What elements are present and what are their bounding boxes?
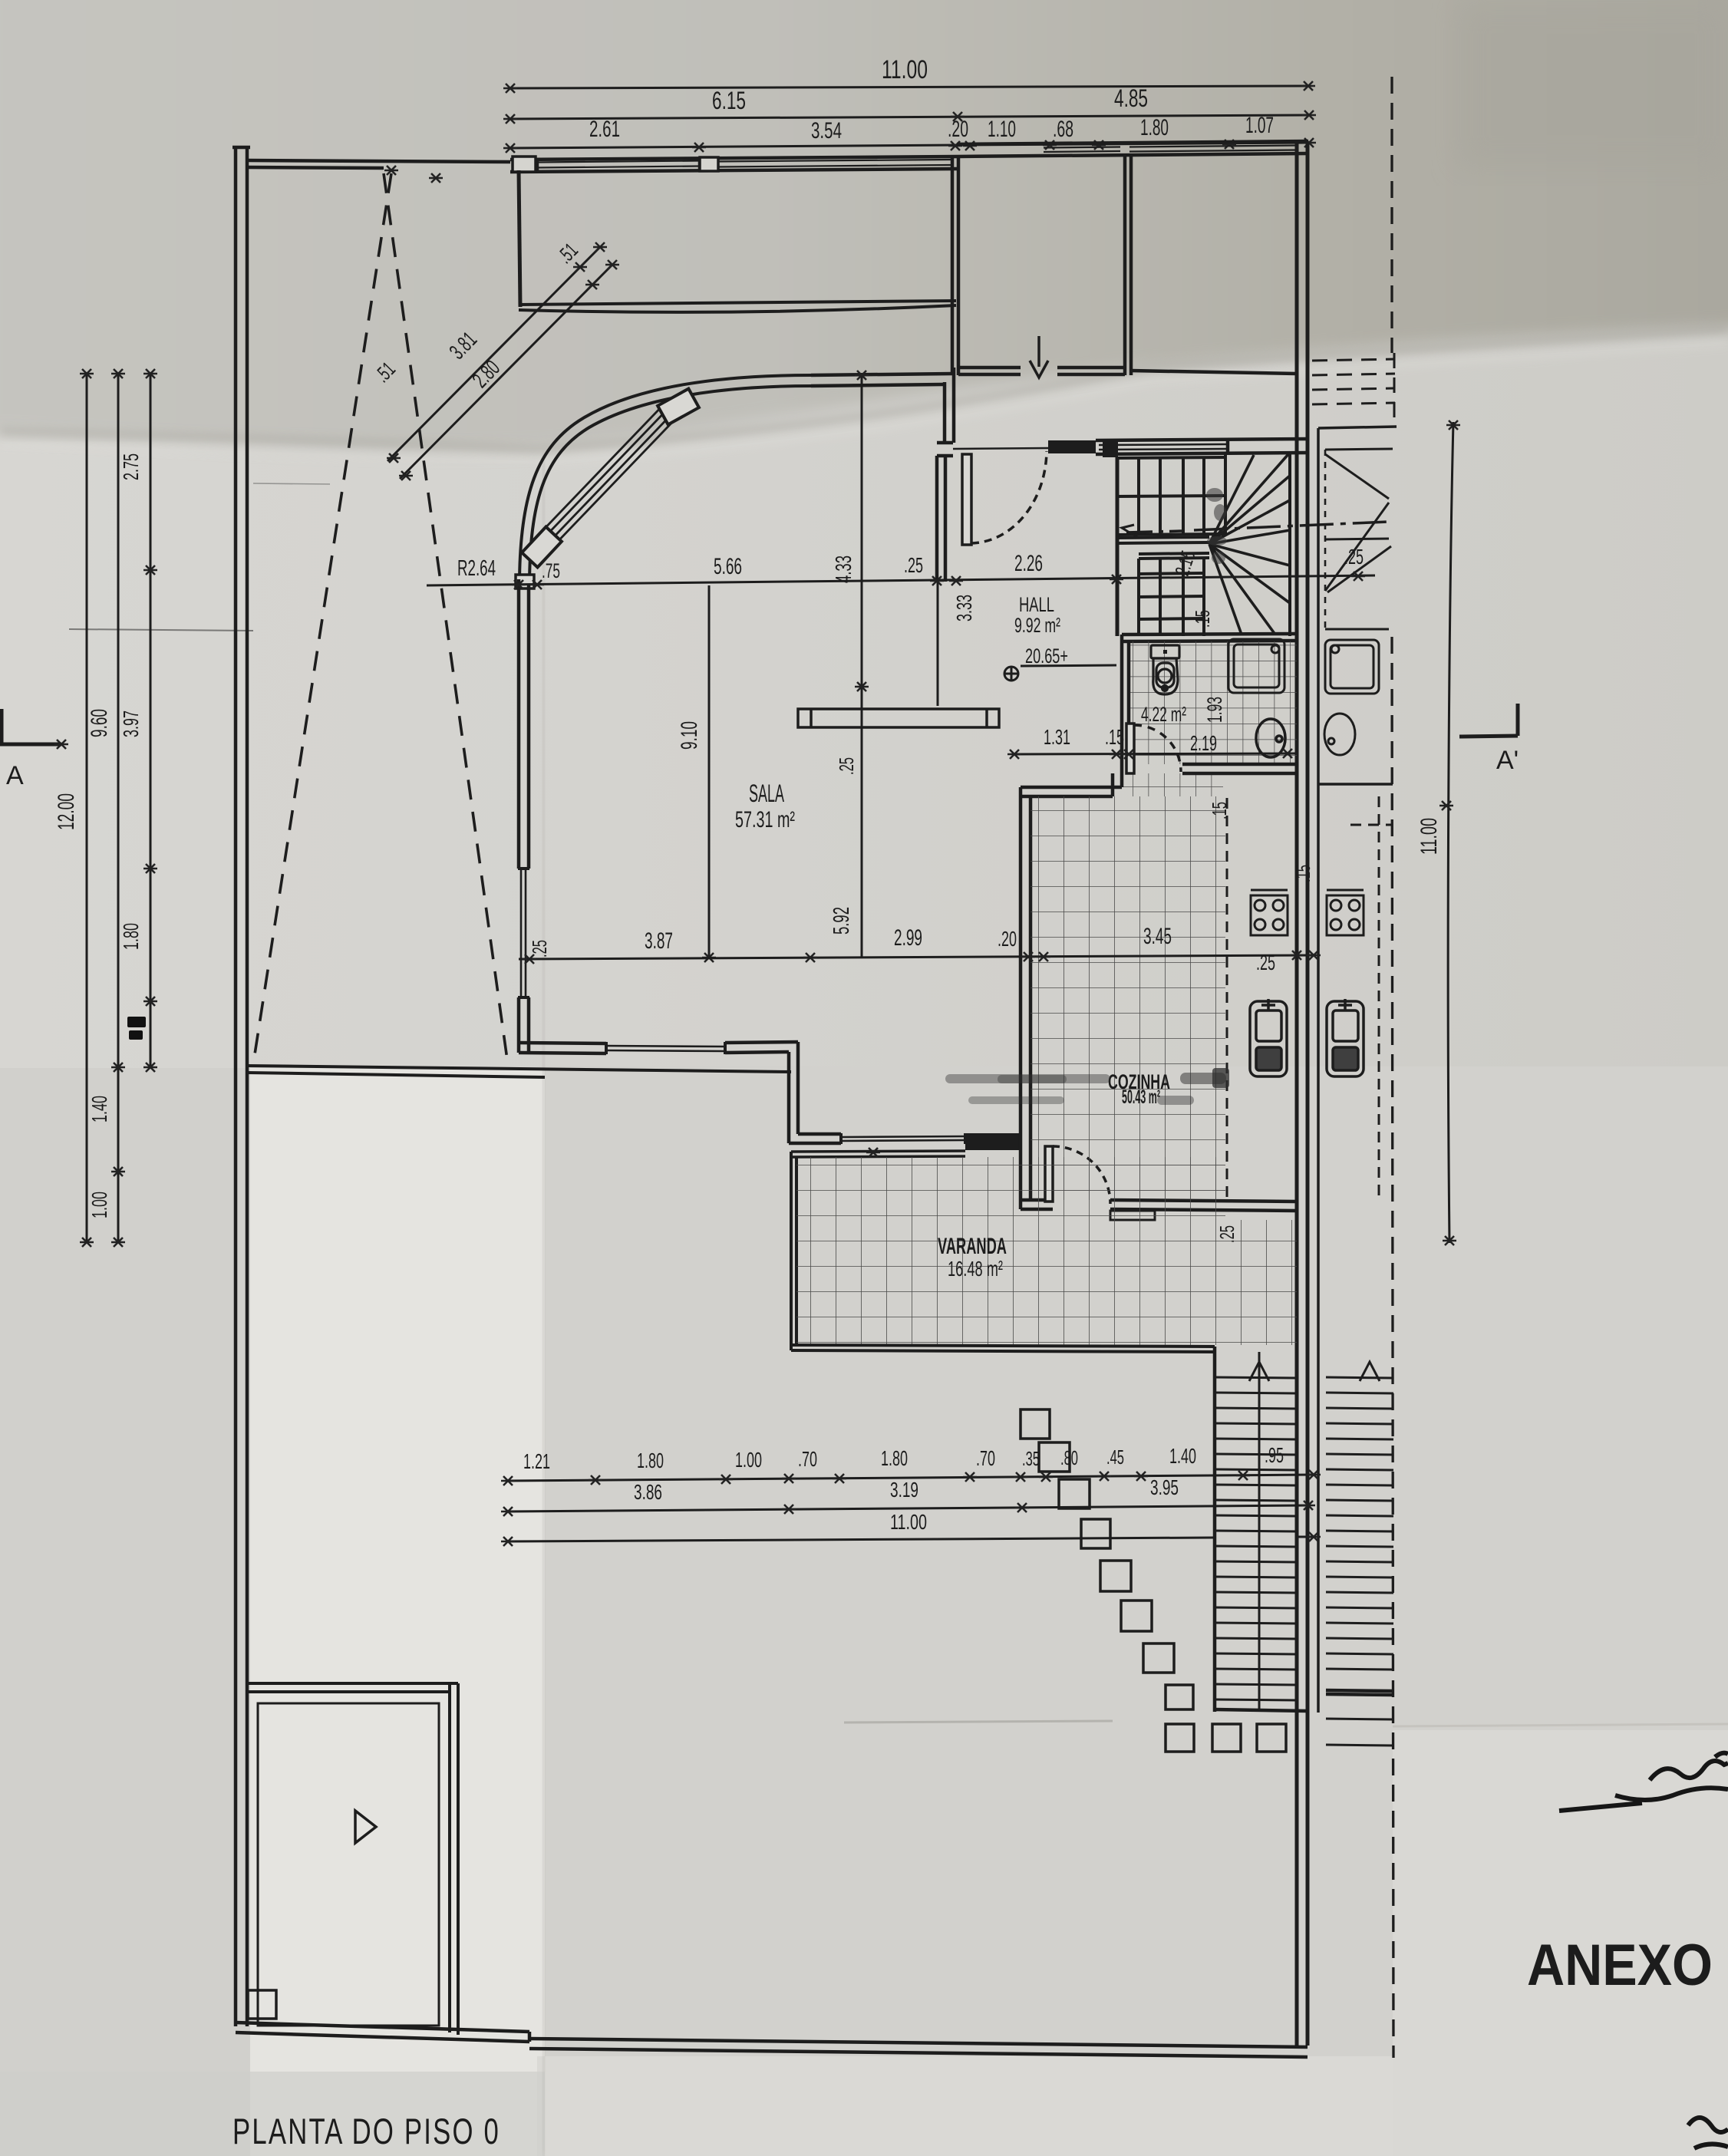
svg-text:1.80: 1.80 bbox=[119, 923, 143, 950]
svg-text:.20: .20 bbox=[998, 927, 1017, 951]
svg-text:.68: .68 bbox=[1053, 117, 1073, 142]
svg-text:.25: .25 bbox=[835, 757, 858, 775]
svg-text:2.61: 2.61 bbox=[589, 117, 620, 142]
svg-text:.45: .45 bbox=[1106, 1446, 1124, 1469]
svg-text:5.66: 5.66 bbox=[714, 554, 742, 579]
svg-text:.25: .25 bbox=[1215, 1225, 1238, 1243]
svg-text:A': A' bbox=[1496, 746, 1519, 775]
svg-text:1.80: 1.80 bbox=[881, 1446, 908, 1470]
svg-text:.25: .25 bbox=[1344, 545, 1364, 569]
svg-text:1.10: 1.10 bbox=[988, 117, 1016, 142]
svg-text:.95: .95 bbox=[1265, 1443, 1284, 1467]
svg-text:A: A bbox=[6, 761, 24, 790]
svg-text:3.54: 3.54 bbox=[811, 118, 842, 143]
svg-text:.15: .15 bbox=[1291, 865, 1314, 882]
svg-text:HALL: HALL bbox=[1019, 593, 1054, 616]
svg-text:R2.64: R2.64 bbox=[457, 556, 496, 581]
svg-text:VARANDA: VARANDA bbox=[938, 1234, 1007, 1259]
svg-text:3.95: 3.95 bbox=[1150, 1475, 1179, 1499]
svg-text:3.33: 3.33 bbox=[952, 595, 976, 621]
svg-text:9.60: 9.60 bbox=[87, 709, 112, 737]
svg-text:.80: .80 bbox=[1060, 1446, 1078, 1469]
svg-text:ANEXO: ANEXO bbox=[1527, 1933, 1713, 1998]
svg-text:11.00: 11.00 bbox=[882, 55, 928, 84]
svg-text:1.31: 1.31 bbox=[1044, 725, 1070, 749]
svg-text:1.40: 1.40 bbox=[87, 1096, 111, 1123]
svg-text:.70: .70 bbox=[976, 1446, 995, 1470]
svg-text:57.31 m²: 57.31 m² bbox=[735, 807, 795, 832]
svg-text:.15: .15 bbox=[1105, 725, 1124, 749]
svg-text:50.43 m²: 50.43 m² bbox=[1122, 1086, 1160, 1108]
svg-text:9.92 m²: 9.92 m² bbox=[1014, 614, 1060, 637]
svg-text:2.99: 2.99 bbox=[894, 925, 922, 951]
svg-text:1.93: 1.93 bbox=[1203, 697, 1226, 723]
svg-text:.70: .70 bbox=[798, 1447, 817, 1471]
svg-text:.20: .20 bbox=[948, 117, 968, 142]
svg-text:.25: .25 bbox=[904, 553, 923, 577]
svg-text:1.07: 1.07 bbox=[1245, 113, 1274, 138]
svg-text:3.97: 3.97 bbox=[119, 710, 143, 737]
svg-text:.15: .15 bbox=[1191, 610, 1214, 628]
svg-text:2.26: 2.26 bbox=[1014, 551, 1043, 576]
svg-text:.15: .15 bbox=[1208, 802, 1231, 819]
svg-text:.25: .25 bbox=[1256, 951, 1275, 974]
svg-text:SALA: SALA bbox=[749, 780, 784, 807]
svg-text:11.00: 11.00 bbox=[890, 1510, 927, 1534]
svg-text:2.75: 2.75 bbox=[119, 453, 143, 480]
svg-text:6.15: 6.15 bbox=[712, 87, 746, 114]
svg-text:3.19: 3.19 bbox=[890, 1478, 918, 1502]
svg-text:1.21: 1.21 bbox=[523, 1449, 550, 1473]
svg-text:.25: .25 bbox=[528, 940, 551, 958]
svg-text:4.22 m²: 4.22 m² bbox=[1141, 703, 1186, 726]
svg-text:1.40: 1.40 bbox=[1169, 1444, 1196, 1468]
svg-text:.75: .75 bbox=[542, 559, 560, 582]
svg-text:20.65+: 20.65+ bbox=[1025, 644, 1068, 668]
svg-text:2.19: 2.19 bbox=[1190, 731, 1217, 755]
svg-text:9.10: 9.10 bbox=[677, 721, 702, 750]
svg-text:1.00: 1.00 bbox=[735, 1448, 762, 1472]
svg-text:1.00: 1.00 bbox=[87, 1192, 111, 1218]
svg-text:3.87: 3.87 bbox=[645, 928, 673, 954]
svg-text:1.80: 1.80 bbox=[1140, 115, 1169, 140]
svg-text:1.80: 1.80 bbox=[637, 1449, 664, 1472]
svg-text:PLANTA DO PISO 0: PLANTA DO PISO 0 bbox=[232, 2111, 500, 2151]
svg-text:5.92: 5.92 bbox=[829, 907, 854, 935]
svg-text:.35: .35 bbox=[1022, 1447, 1040, 1470]
svg-text:16.48 m²: 16.48 m² bbox=[948, 1257, 1003, 1281]
svg-text:12.00: 12.00 bbox=[54, 793, 79, 830]
svg-text:3.86: 3.86 bbox=[634, 1480, 662, 1504]
svg-text:11.00: 11.00 bbox=[1416, 818, 1442, 855]
svg-text:4.33: 4.33 bbox=[832, 555, 856, 583]
svg-text:4.85: 4.85 bbox=[1114, 84, 1148, 112]
svg-text:3.45: 3.45 bbox=[1143, 924, 1172, 949]
